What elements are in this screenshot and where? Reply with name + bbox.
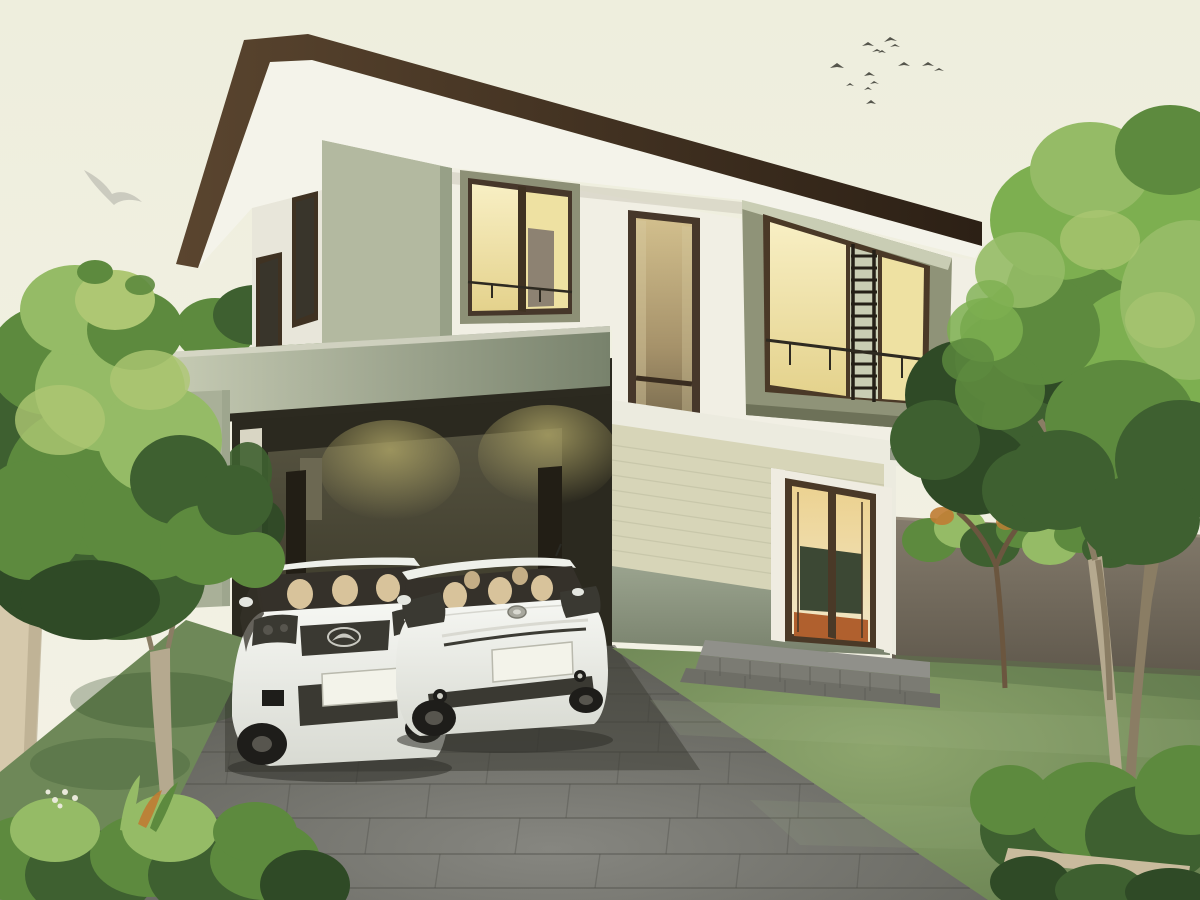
window-glass (472, 184, 518, 311)
wheel-hub (425, 711, 443, 725)
hedge-blob (970, 765, 1050, 835)
toyota-logo-center (513, 610, 521, 615)
headlight-lens (263, 625, 273, 635)
house-rendering (0, 0, 1200, 900)
sage-corner-volume (322, 140, 452, 344)
foliage-highlight (15, 385, 105, 455)
hedge-blob (10, 798, 100, 862)
car-seat (531, 575, 553, 601)
foliage-highlight (1125, 292, 1195, 348)
fog-light-lens (578, 674, 583, 679)
entrance (771, 468, 892, 652)
door-mullion (828, 491, 836, 639)
foliage-blob (197, 465, 273, 535)
fog-light (262, 690, 284, 706)
flower (62, 789, 68, 795)
foliage-blob (966, 280, 1014, 320)
flower (52, 797, 58, 803)
entrance-jamb-left (771, 468, 785, 642)
side-mirror (239, 597, 253, 607)
foliage-blob (20, 560, 160, 640)
car-seat (332, 575, 358, 605)
flower (58, 804, 63, 809)
hedge-blob (213, 802, 297, 862)
fog-light-lens (437, 693, 443, 699)
foliage-blob (225, 532, 285, 588)
headlight (252, 615, 298, 646)
side-mirror (572, 588, 584, 596)
rear-headrest (512, 567, 528, 585)
foliage-blob (942, 338, 994, 382)
wheel-hub (252, 736, 272, 752)
entrance-jamb-right (876, 496, 892, 652)
car-seat (488, 577, 512, 605)
headlight-lens (280, 624, 288, 632)
hedge-blob (122, 794, 218, 862)
car-seat (376, 574, 400, 602)
flower (46, 790, 51, 795)
narrow-window-glass (260, 258, 278, 357)
car-seat (287, 579, 313, 609)
foliage-blob (1080, 475, 1200, 565)
ceiling-light-glow (320, 420, 460, 520)
bottom-right-planter (970, 745, 1200, 900)
window-mullion (518, 186, 526, 312)
foliage-blob (77, 260, 113, 284)
foliage-highlight (110, 350, 190, 410)
wheel-hub (579, 695, 593, 705)
side-mirror (397, 595, 411, 605)
foliage-highlight (1060, 210, 1140, 270)
license-plate (322, 668, 401, 706)
window-glass (770, 222, 846, 396)
sage-corner-shade (440, 166, 452, 338)
cars (228, 544, 613, 782)
car-seat (443, 582, 467, 610)
narrow-window-glass (296, 197, 314, 320)
flower (72, 795, 78, 801)
lit-window (460, 170, 580, 324)
rendering-canvas (0, 0, 1200, 900)
rear-headrest (464, 571, 480, 589)
foliage-blob (125, 275, 155, 295)
car-grille (300, 620, 390, 656)
